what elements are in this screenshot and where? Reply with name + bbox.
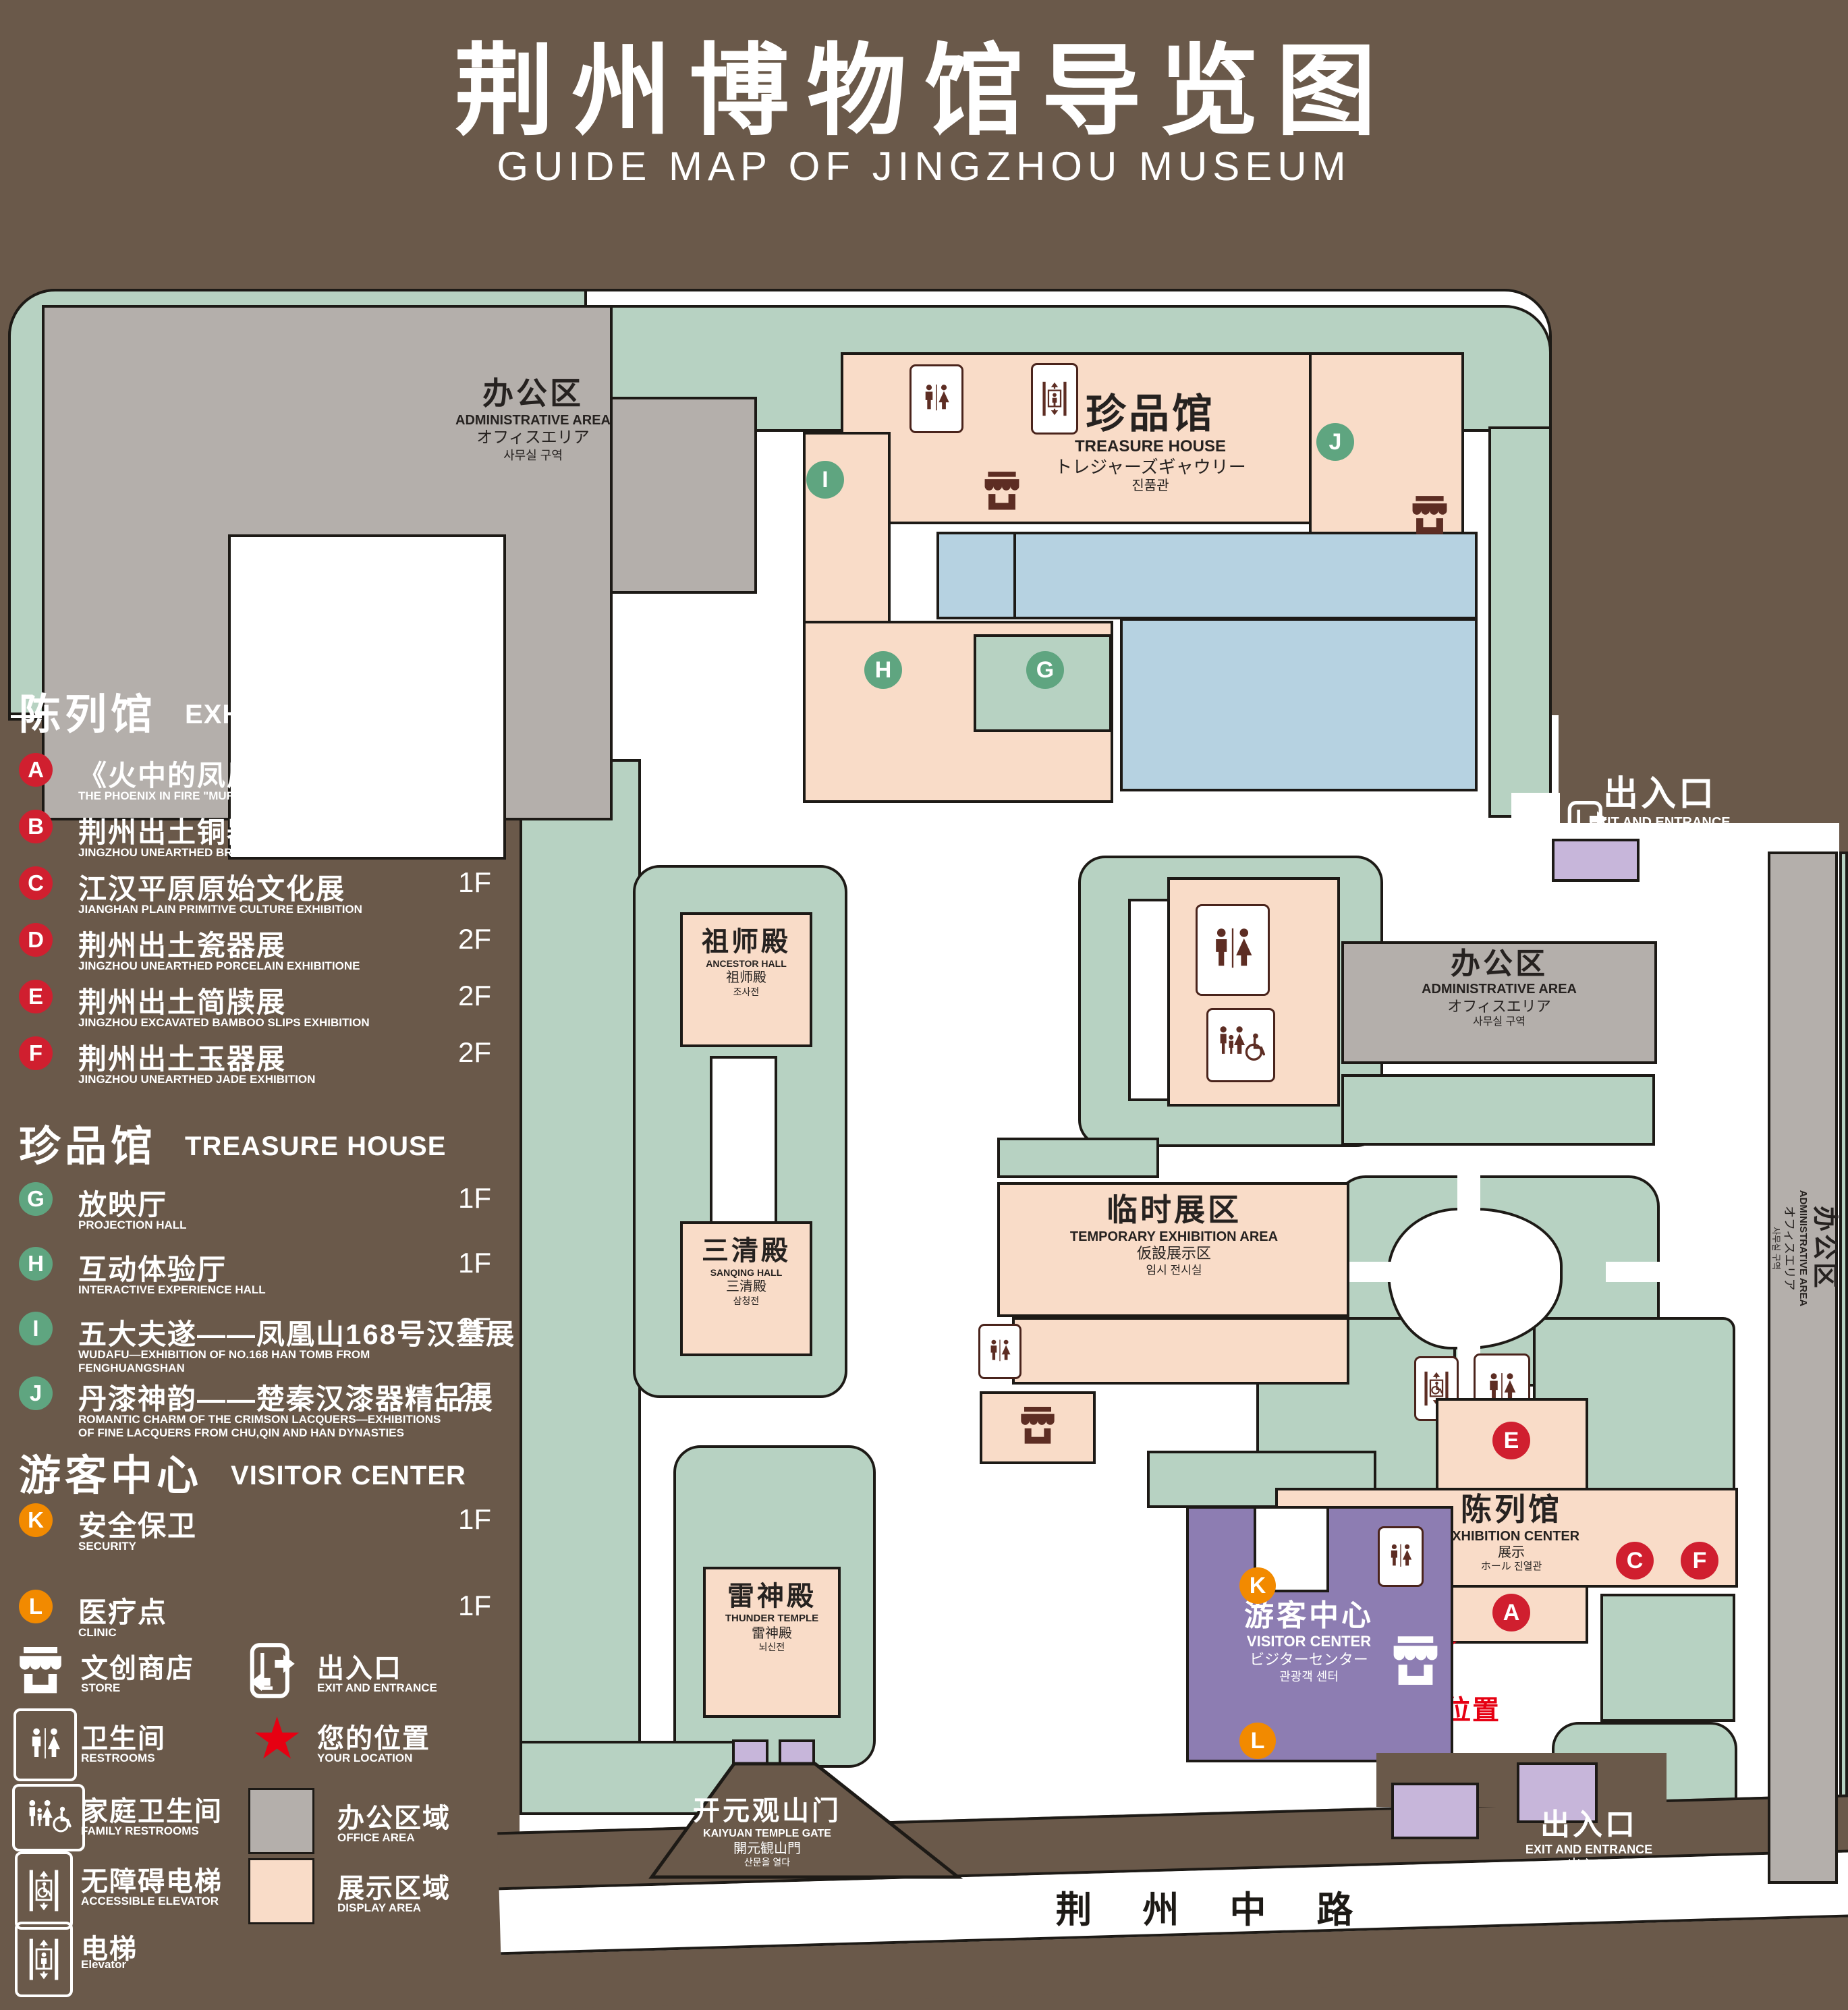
restrooms-icon [909,364,963,433]
landscape-ec-apron-east [1600,1594,1735,1722]
store-icon [13,1644,67,1698]
legend-section-exhibition: 陈列馆EXHIBITION CENTER [19,680,470,741]
admin-se-label: 办公区 ADMINISTRATIVE AREA オフィスエリア 사무실 구역 [1766,1113,1840,1383]
ne-gate-structure [1552,839,1640,882]
badge-c: C [19,866,53,900]
map-badge-j: J [1316,423,1354,461]
legend-restrooms-en: RESTROOMS [81,1752,155,1765]
legend-item-i: I 五大夫遂——凤凰山168号汉墓展 WUDAFU—EXHIBITION OF … [19,1314,491,1376]
badge-a: A [19,753,53,787]
legend-item-e: E 荆州出土简牍展 JINGZHOU EXCAVATED BAMBOO SLIP… [19,982,491,1044]
your-location-star: ★ [251,1710,303,1768]
legend-section-treasure: 珍品馆TREASURE HOUSE [19,1112,446,1173]
legend-location-zh: 您的位置 [317,1716,430,1756]
elevator-icon [1031,363,1078,435]
badge-l: L [19,1590,53,1623]
pond-north [1013,532,1478,619]
ne-exit-path [1511,793,1560,833]
map-badge-l: L [1239,1723,1276,1759]
restrooms-icon [1378,1526,1424,1587]
landscape-east-strip [1488,426,1552,818]
store-icon [1016,1403,1059,1448]
map-badge-f: F [1681,1542,1718,1580]
map-badge-c: C [1616,1542,1654,1580]
visitor-center-label: 游客中心 VISITOR CENTER ビジターセンター 관광객 센터 [1208,1598,1410,1685]
map-badge-i: I [806,461,844,499]
legend-store-en: STORE [81,1681,120,1695]
se-exit-label: 出入口 EXIT AND ENTRANCE 出入口 출입구 [1484,1807,1693,1889]
elevator-icon [15,1922,73,1997]
legend-exit-en: EXIT AND ENTRANCE [317,1681,437,1695]
accessible-elevator-icon [15,1851,73,1930]
legend-office-zh: 办公区域 [337,1796,451,1835]
exit-entrance-icon [244,1638,301,1703]
legend-accelev-en: ACCESSIBLE ELEVATOR [81,1895,219,1908]
badge-d: D [19,923,53,957]
badge-k: K [19,1503,53,1537]
legend-item-f: F 荆州出土玉器展 JINGZHOU UNEARTHED JADE EXHIBI… [19,1039,491,1101]
restrooms-icon [1196,904,1270,996]
badge-e: E [19,980,53,1013]
office-area-swatch [248,1788,314,1854]
store-icon [980,467,1024,515]
pond-west-arm [936,532,1024,619]
legend-accelev-zh: 无障碍电梯 [81,1860,223,1899]
ancestor-hall-label: 祖师殿 ANCESTOR HALL 祖师殿 조사전 [680,926,812,999]
gate-label: 开元观山门 KAIYUAN TEMPLE GATE 開元観山門 산문을 열다 [663,1795,872,1870]
map-badge-e: E [1492,1422,1530,1459]
legend-item-j: J 丹漆神韵——楚秦汉漆器精品展 ROMANTIC CHARM OF THE C… [19,1379,491,1441]
temporary-exhibition-arm [1012,1317,1349,1385]
road-name: 荆 州 中 路 [1053,1880,1376,1933]
garden-path-n [1457,1175,1480,1223]
map-badge-k: K [1239,1567,1276,1604]
badge-j: J [19,1376,53,1410]
badge-g: G [19,1182,53,1216]
landscape-east-sliver [1839,852,1848,1884]
badge-f: F [19,1036,53,1070]
legend-section-visitor: 游客中心VISITOR CENTER [19,1441,466,1502]
legend-item-d: D 荆州出土瓷器展 JINGZHOU UNEARTHED PORCELAIN E… [19,926,491,988]
legend-restrooms-zh: 卫生间 [81,1716,166,1756]
page-subtitle: GUIDE MAP OF JINGZHOU MUSEUM [0,143,1848,190]
map-badge-a: A [1492,1594,1530,1631]
legend-item-b: B 荆州出土铜器展 JINGZHOU UNEARTHED BRONZE WARE… [19,812,491,874]
legend-item-h: H 互动体验厅 INTERACTIVE EXPERIENCE HALL 1F [19,1250,491,1312]
se-gate-structure-west [1391,1783,1479,1839]
legend-item-c: C 江汉平原原始文化展 JIANGHAN PLAIN PRIMITIVE CUL… [19,869,491,931]
legend-item-k: K 安全保卫 SECURITY 1F [19,1506,491,1568]
badge-i: I [19,1312,53,1345]
badge-b: B [19,810,53,843]
legend-location-en: YOUR LOCATION [317,1752,412,1765]
restrooms-icon [978,1324,1021,1379]
store-icon [1407,491,1452,540]
legend-family-zh: 家庭卫生间 [81,1789,223,1828]
garden-path-e [1606,1262,1660,1282]
legend-office-en: OFFICE AREA [337,1831,415,1845]
sanqing-hall-label: 三清殿 SANQING HALL 三清殿 삼청전 [680,1235,812,1308]
legend-store-zh: 文创商店 [81,1646,194,1685]
family-restrooms-icon [1206,1008,1275,1082]
thunder-temple-label: 雷神殿 THUNDER TEMPLE 雷神殿 뇌신전 [703,1580,841,1654]
display-area-swatch [248,1858,314,1924]
page-title: 荆州博物馆导览图 [0,9,1848,155]
restrooms-icon [13,1708,77,1781]
legend-item-g: G 放映厅 PROJECTION HALL 1F [19,1185,491,1247]
legend-exit-zh: 出入口 [317,1646,402,1685]
temporary-exhibition-label: 临时展区 TEMPORARY EXHIBITION AREA 仮設展示区 임시 … [1005,1192,1343,1278]
legend-display-en: DISPLAY AREA [337,1901,421,1915]
map-badge-g: G [1026,651,1064,689]
legend-display-zh: 展示区域 [337,1866,451,1905]
map-badge-h: H [864,651,902,689]
ancestor-corridor [710,1056,777,1225]
landscape-west-band [520,759,641,1798]
landscape-office-apron [1341,1074,1655,1146]
pond-main [1120,618,1478,791]
legend-item-a: A 《火中的凤凰》壁画 THE PHOENIX IN FIRE "MURAL P… [19,756,491,818]
legend-family-en: FAMILY RESTROOMS [81,1824,199,1838]
admin-e-label: 办公区 ADMINISTRATIVE AREA オフィスエリア 사무실 구역 [1349,946,1649,1030]
family-restrooms-icon [12,1784,85,1851]
landscape-temp-north [997,1138,1159,1178]
legend-elevator-en: Elevator [81,1958,126,1972]
badge-h: H [19,1247,53,1281]
admin-nw-label: 办公区 ADMINISTRATIVE AREA オフィスエリア 사무실 구역 [378,375,688,464]
